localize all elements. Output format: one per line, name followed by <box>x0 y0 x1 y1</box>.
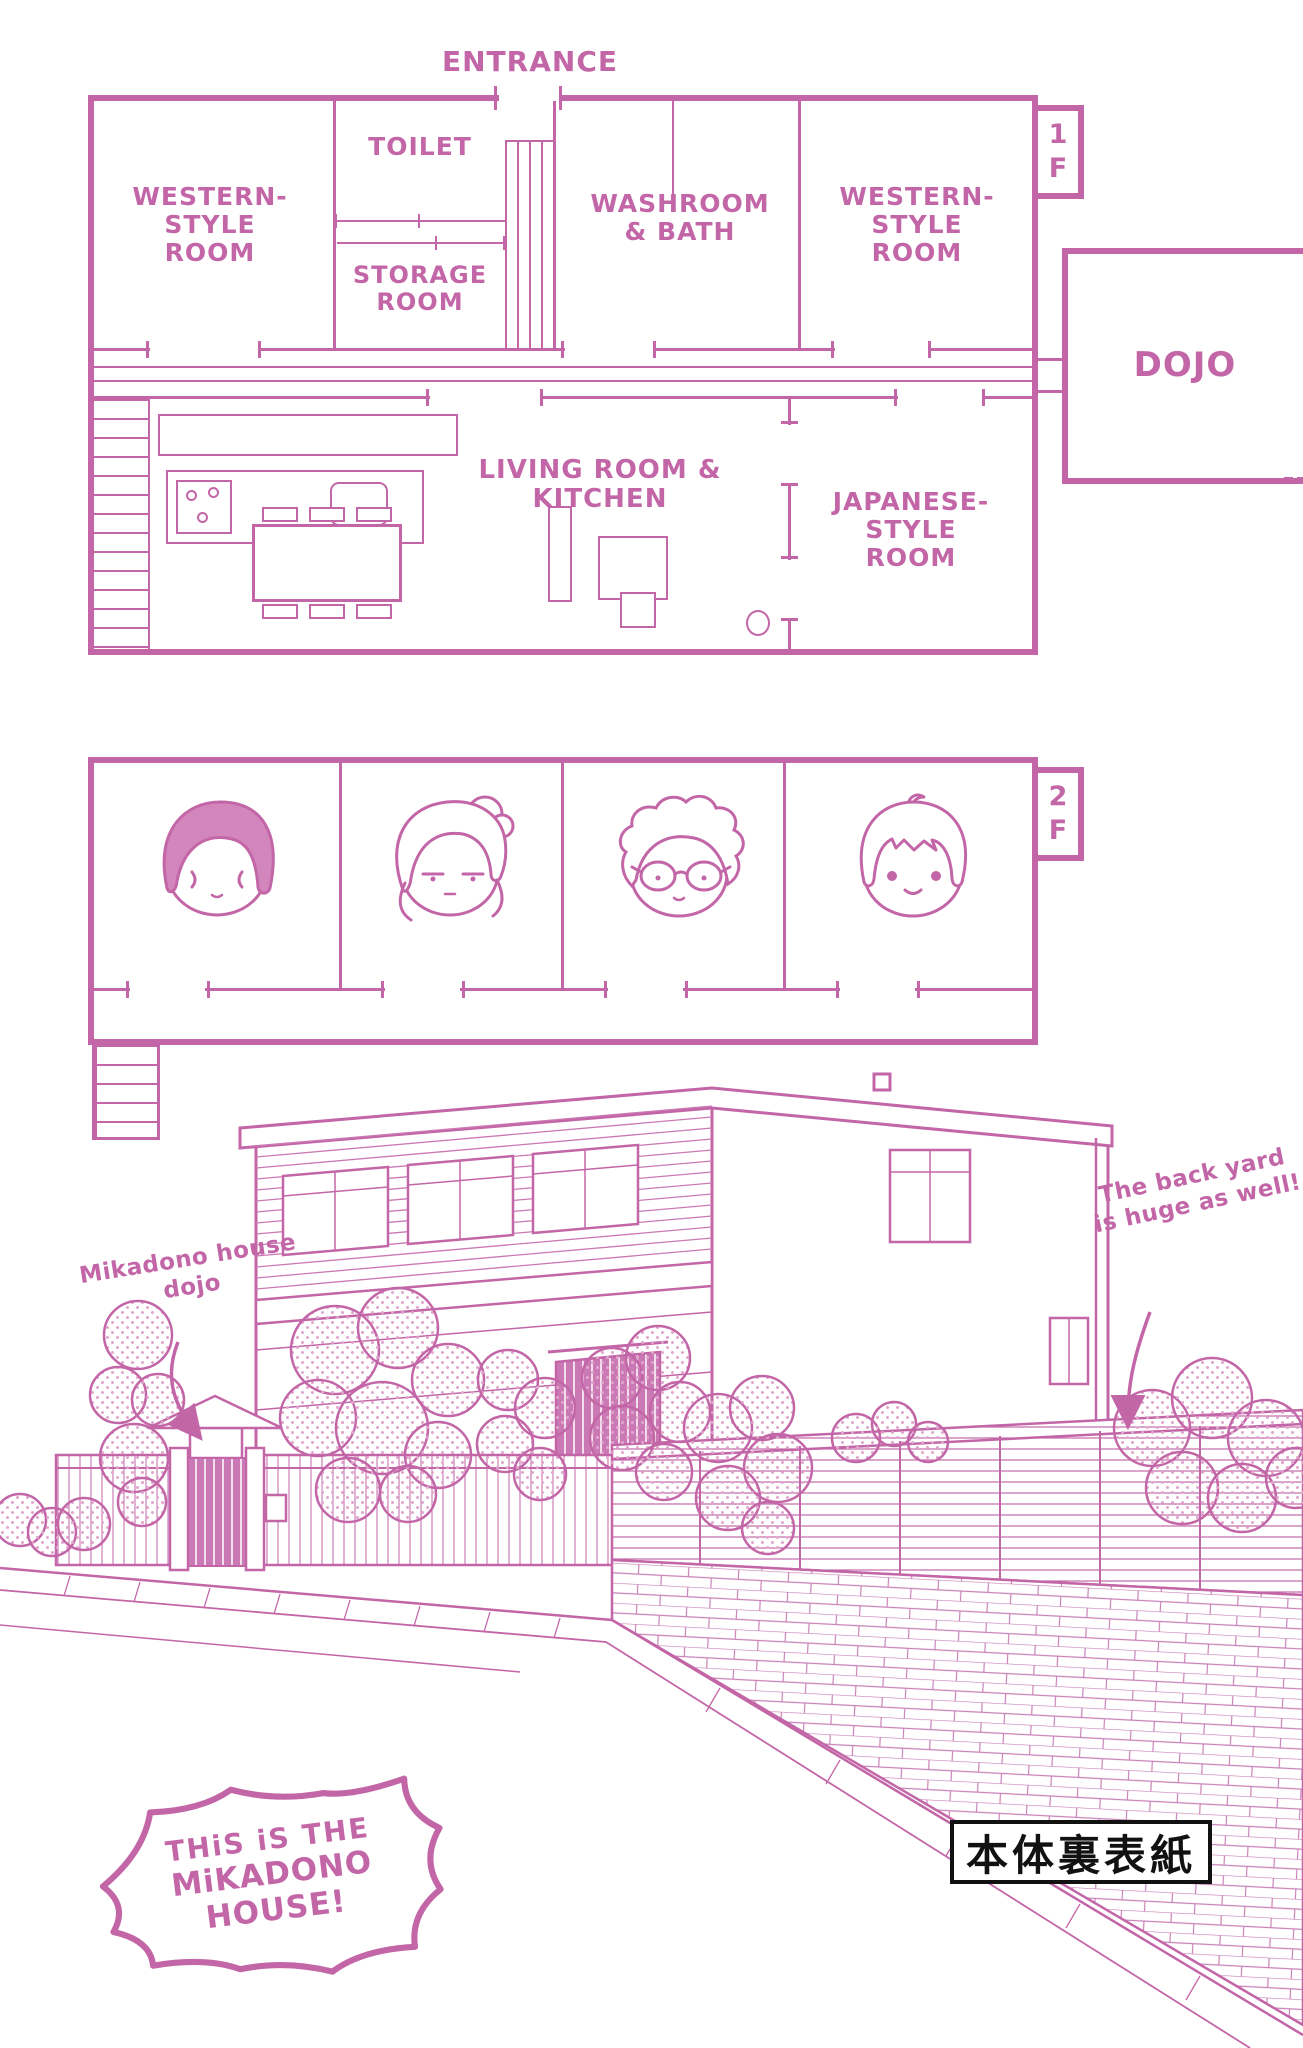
door-jamb-tick <box>685 981 688 998</box>
door-gap <box>840 987 915 992</box>
entrance-door-gap <box>499 92 559 105</box>
hallway-floor-line <box>94 380 1032 382</box>
tv-board <box>548 506 572 602</box>
door-jamb-tick <box>561 341 564 358</box>
chair <box>356 604 392 619</box>
door-gap <box>565 347 653 352</box>
sofa <box>598 536 668 600</box>
door-jamb-tick <box>435 236 437 250</box>
blonde-bun-hair-resident-face-icon <box>377 786 527 926</box>
chair <box>309 604 345 619</box>
dark-bob-hair-resident-face-icon <box>142 788 292 923</box>
genkan-line <box>529 140 531 350</box>
stone-retaining-wall <box>612 1560 1303 2025</box>
floor1-staircase <box>94 399 150 649</box>
genkan-line <box>505 140 507 350</box>
wall <box>561 763 564 990</box>
sliding-door-line <box>337 220 505 222</box>
manga-back-cover-page: ENTRANCE 1 F <box>0 0 1303 2048</box>
chair <box>262 507 298 522</box>
chair <box>309 507 345 522</box>
dining-table <box>252 524 402 602</box>
door-jamb-tick <box>928 341 931 358</box>
roof-vent <box>874 1074 890 1090</box>
door-gap <box>430 395 540 400</box>
door-jamb-tick <box>917 981 920 998</box>
door-gap <box>608 987 683 992</box>
side-table <box>620 592 656 628</box>
burner-icon <box>208 487 219 498</box>
door-jamb-tick <box>781 421 798 424</box>
back-cover-label: 本体裏表紙 <box>966 1822 1196 1883</box>
floor1-badge: 1 F <box>1032 105 1084 199</box>
intercom-box <box>266 1495 286 1521</box>
stove-icon <box>176 480 232 534</box>
door-jamb-tick <box>831 341 834 358</box>
western-style-room-right-label: WESTERN- STYLE ROOM <box>822 183 1012 267</box>
door-jamb-tick <box>426 389 429 406</box>
door-jamb-tick <box>604 981 607 998</box>
door-gap <box>150 347 258 352</box>
messy-hair-glasses-resident-face-icon <box>604 786 754 926</box>
short-hair-boy-resident-face-icon <box>838 790 988 925</box>
door-gap <box>385 987 460 992</box>
wall <box>783 763 786 990</box>
door-jamb-tick <box>559 86 562 110</box>
door-jamb-tick <box>335 214 337 228</box>
door-gap <box>898 395 982 400</box>
wall-continues-dash <box>1284 477 1293 481</box>
chair <box>356 507 392 522</box>
burner-icon <box>197 512 208 523</box>
japanese-style-room-label: JAPANESE- STYLE ROOM <box>826 488 996 572</box>
door-jamb-tick <box>653 341 656 358</box>
door-jamb-tick <box>381 981 384 998</box>
door-jamb-tick <box>894 389 897 406</box>
floor2-badge: 2 F <box>1032 767 1084 861</box>
washroom-bath-label: WASHROOM & BATH <box>575 190 785 246</box>
genkan-line <box>541 140 543 350</box>
door-jamb-tick <box>540 389 543 406</box>
western-style-room-left-label: WESTERN- STYLE ROOM <box>115 183 305 267</box>
speech-bubble: THiS iS THE MiKADONO HOUSE! <box>82 1765 462 1980</box>
door-jamb-tick <box>146 341 149 358</box>
door-jamb-tick <box>462 981 465 998</box>
dojo-label: DOJO <box>1100 346 1270 384</box>
dojo-corridor-wall <box>1038 358 1064 361</box>
toilet-label: TOILET <box>350 133 490 161</box>
wall <box>339 763 342 990</box>
door-jamb-tick <box>126 981 129 998</box>
storage-room-label: STORAGE ROOM <box>345 262 495 316</box>
door-gap <box>787 425 792 483</box>
door-jamb-tick <box>781 618 798 621</box>
door-gap <box>787 560 792 618</box>
paving-joint-lines <box>64 1576 560 1638</box>
wall-continues-dash <box>1284 249 1293 253</box>
door-jamb-tick <box>982 389 985 406</box>
genkan-step-line <box>505 140 555 142</box>
door-jamb-tick <box>781 556 798 559</box>
kitchen-bar-counter <box>158 414 458 456</box>
sliding-door-line <box>337 242 505 244</box>
door-jamb-tick <box>781 483 798 486</box>
door-jamb-tick <box>836 981 839 998</box>
wall-continues-dash <box>1297 249 1303 253</box>
hallway-wall-bottom <box>94 396 1032 399</box>
hallway-floor-line <box>94 366 1032 368</box>
door-gap <box>130 987 205 992</box>
floor-lamp-icon <box>746 610 770 636</box>
dojo-corridor-wall <box>1038 390 1064 393</box>
wall-continues-dash <box>1297 477 1303 481</box>
door-gap <box>835 347 928 352</box>
door-jamb-tick <box>207 981 210 998</box>
burner-icon <box>186 490 197 501</box>
door-jamb-tick <box>258 341 261 358</box>
entrance-label: ENTRANCE <box>440 46 620 77</box>
washroom-divider-wall <box>672 101 674 201</box>
door-jamb-tick <box>494 86 497 110</box>
back-cover-box: 本体裏表紙 <box>950 1820 1212 1884</box>
wall <box>553 101 556 350</box>
door-jamb-tick <box>418 214 420 228</box>
genkan-line <box>517 140 519 350</box>
living-room-kitchen-label: LIVING ROOM & KITCHEN <box>435 456 765 514</box>
wall <box>798 101 801 348</box>
chair <box>262 604 298 619</box>
